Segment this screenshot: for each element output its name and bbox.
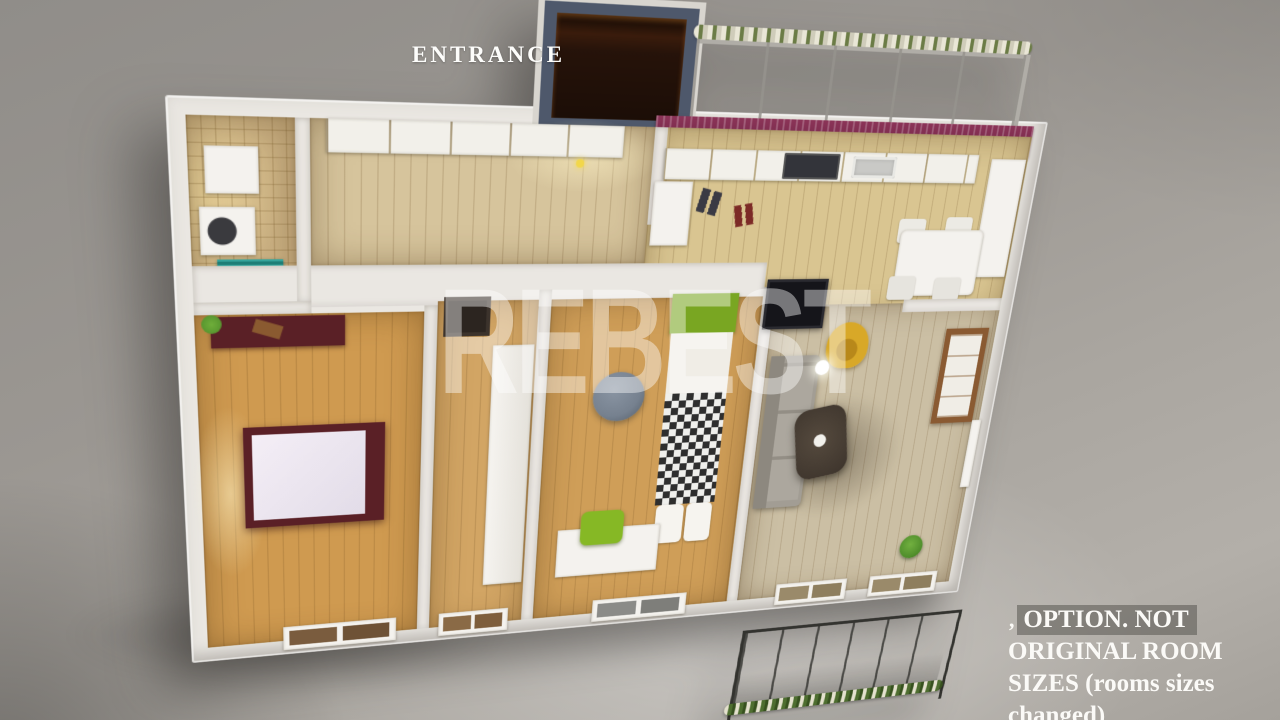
floorplan-scene: REBEST ENTRANCE ‚OPTION. NOT ORIGINAL RO…	[0, 0, 1280, 720]
plant-pot	[898, 534, 925, 559]
window-pane	[640, 597, 679, 614]
note-prefix: ‚	[1008, 607, 1017, 632]
bed-master-mattress	[252, 430, 366, 520]
washing-machine	[199, 207, 256, 256]
bookshelf	[930, 328, 989, 424]
watermark-text: REBEST	[438, 266, 867, 416]
window-pane	[903, 575, 933, 590]
fridge	[649, 181, 693, 245]
entrance-door-opening	[551, 13, 687, 122]
bedroom-master	[194, 311, 424, 647]
bed-master-frame	[243, 422, 385, 529]
bathroom-cabinet	[204, 145, 260, 193]
note-highlight: OPTION. NOT	[1017, 605, 1196, 635]
kitchen-living-partition	[902, 298, 1002, 312]
note-line-4: changed)	[1008, 700, 1276, 720]
window-pane	[811, 583, 842, 599]
cooktop	[782, 153, 841, 180]
hallway-closet	[326, 118, 625, 158]
hallway	[310, 118, 656, 266]
kids-chair-green	[579, 509, 624, 546]
window-pane	[289, 627, 337, 646]
coffee-cup	[813, 433, 826, 448]
dining-chair	[931, 277, 961, 301]
note-line-2: ORIGINAL ROOM	[1008, 636, 1276, 668]
entrance-label: ENTRANCE	[412, 42, 565, 68]
shoes-pair	[695, 188, 722, 217]
note-line-1: ‚OPTION. NOT	[1008, 604, 1276, 636]
side-window-right	[960, 420, 982, 488]
room-size-note: ‚OPTION. NOT ORIGINAL ROOM SIZES (rooms …	[1008, 604, 1276, 720]
shoes-pair	[734, 203, 754, 228]
note-line-3: SIZES (rooms sizes	[1008, 668, 1276, 700]
window-pane	[343, 622, 390, 640]
window-pane	[871, 577, 901, 592]
bathroom-right-wall	[295, 117, 312, 301]
balcony-bottom	[727, 610, 957, 720]
kitchen-sink	[851, 156, 898, 178]
window-pane	[778, 585, 809, 601]
kids-bed-pillow	[683, 502, 713, 542]
kitchen-counter-right	[971, 159, 1026, 277]
window-narrow-room	[438, 608, 508, 636]
window-pane	[597, 601, 637, 618]
window-pane	[474, 612, 502, 628]
dining-chair	[886, 276, 916, 300]
window-pane	[443, 615, 471, 631]
